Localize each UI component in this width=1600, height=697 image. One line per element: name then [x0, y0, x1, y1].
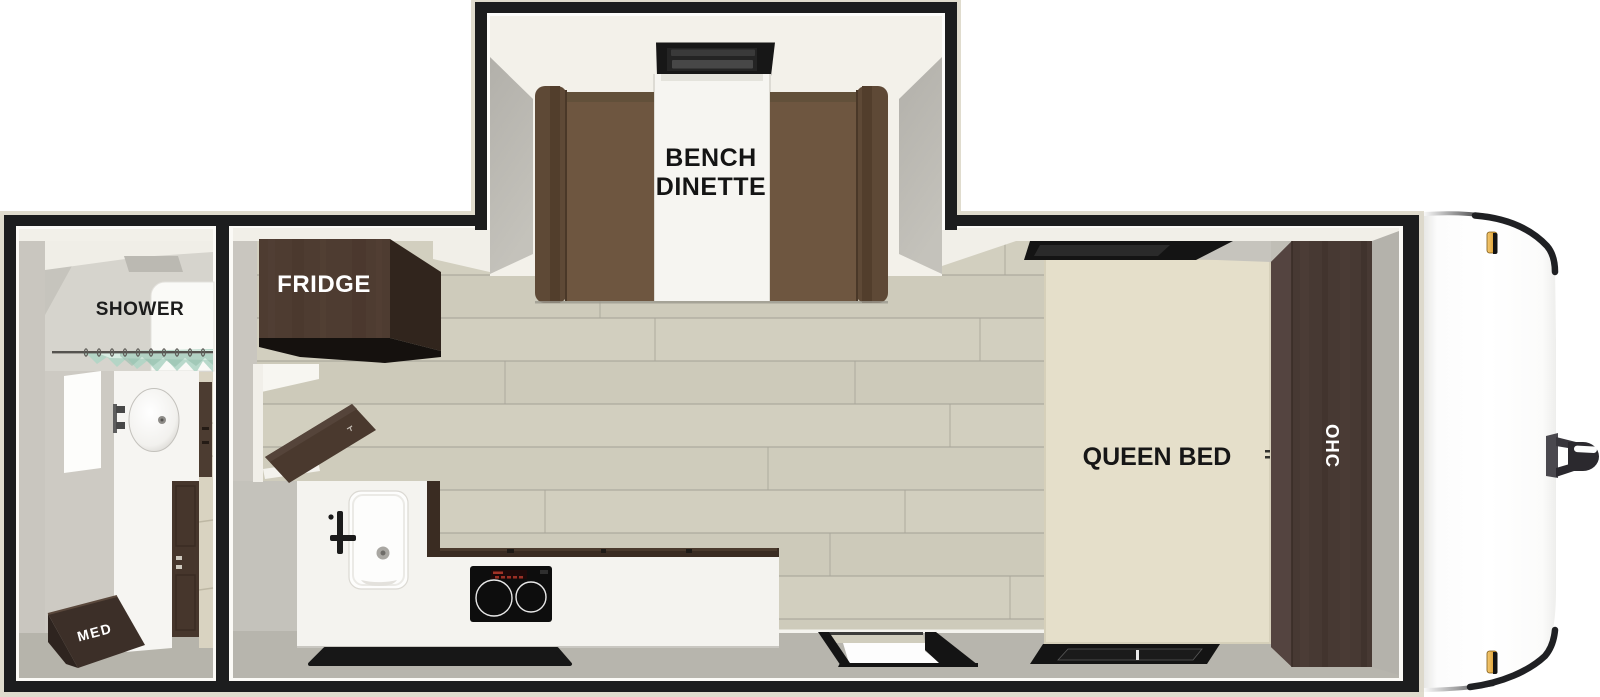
- svg-text:DINETTE: DINETTE: [656, 173, 766, 201]
- svg-text:FRIDGE: FRIDGE: [277, 271, 371, 298]
- svg-text:BENCH: BENCH: [665, 144, 756, 172]
- svg-text:QUEEN BED: QUEEN BED: [1083, 443, 1232, 471]
- svg-text:SHOWER: SHOWER: [96, 299, 185, 320]
- svg-text:OHC: OHC: [1322, 424, 1343, 468]
